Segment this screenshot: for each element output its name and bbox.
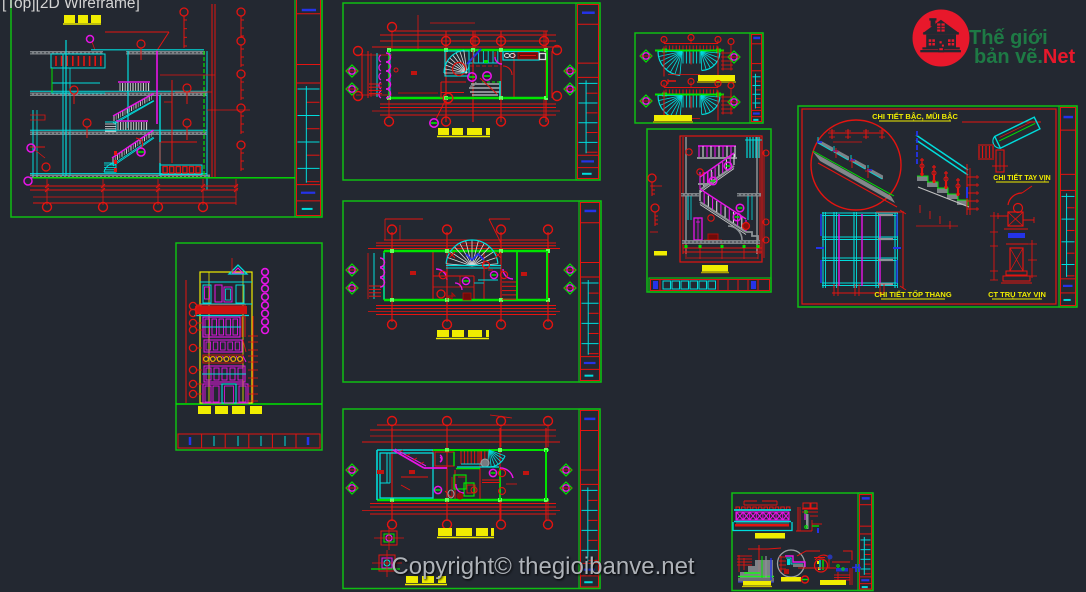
svg-text:[Top][2D Wireframe]: [Top][2D Wireframe] [2,0,140,12]
svg-text:Copyright© thegioibanve.net: Copyright© thegioibanve.net [391,553,695,580]
svg-text:CT TRỤ TAY VỊN: CT TRỤ TAY VỊN [988,290,1046,299]
svg-text:CHI TIẾT BẬC, MŨI BẬC: CHI TIẾT BẬC, MŨI BẬC [872,111,958,121]
svg-text:CHI TIẾT TỐP THANG: CHI TIẾT TỐP THANG [874,289,952,299]
svg-text:bản vẽ.Net: bản vẽ.Net [974,46,1075,68]
